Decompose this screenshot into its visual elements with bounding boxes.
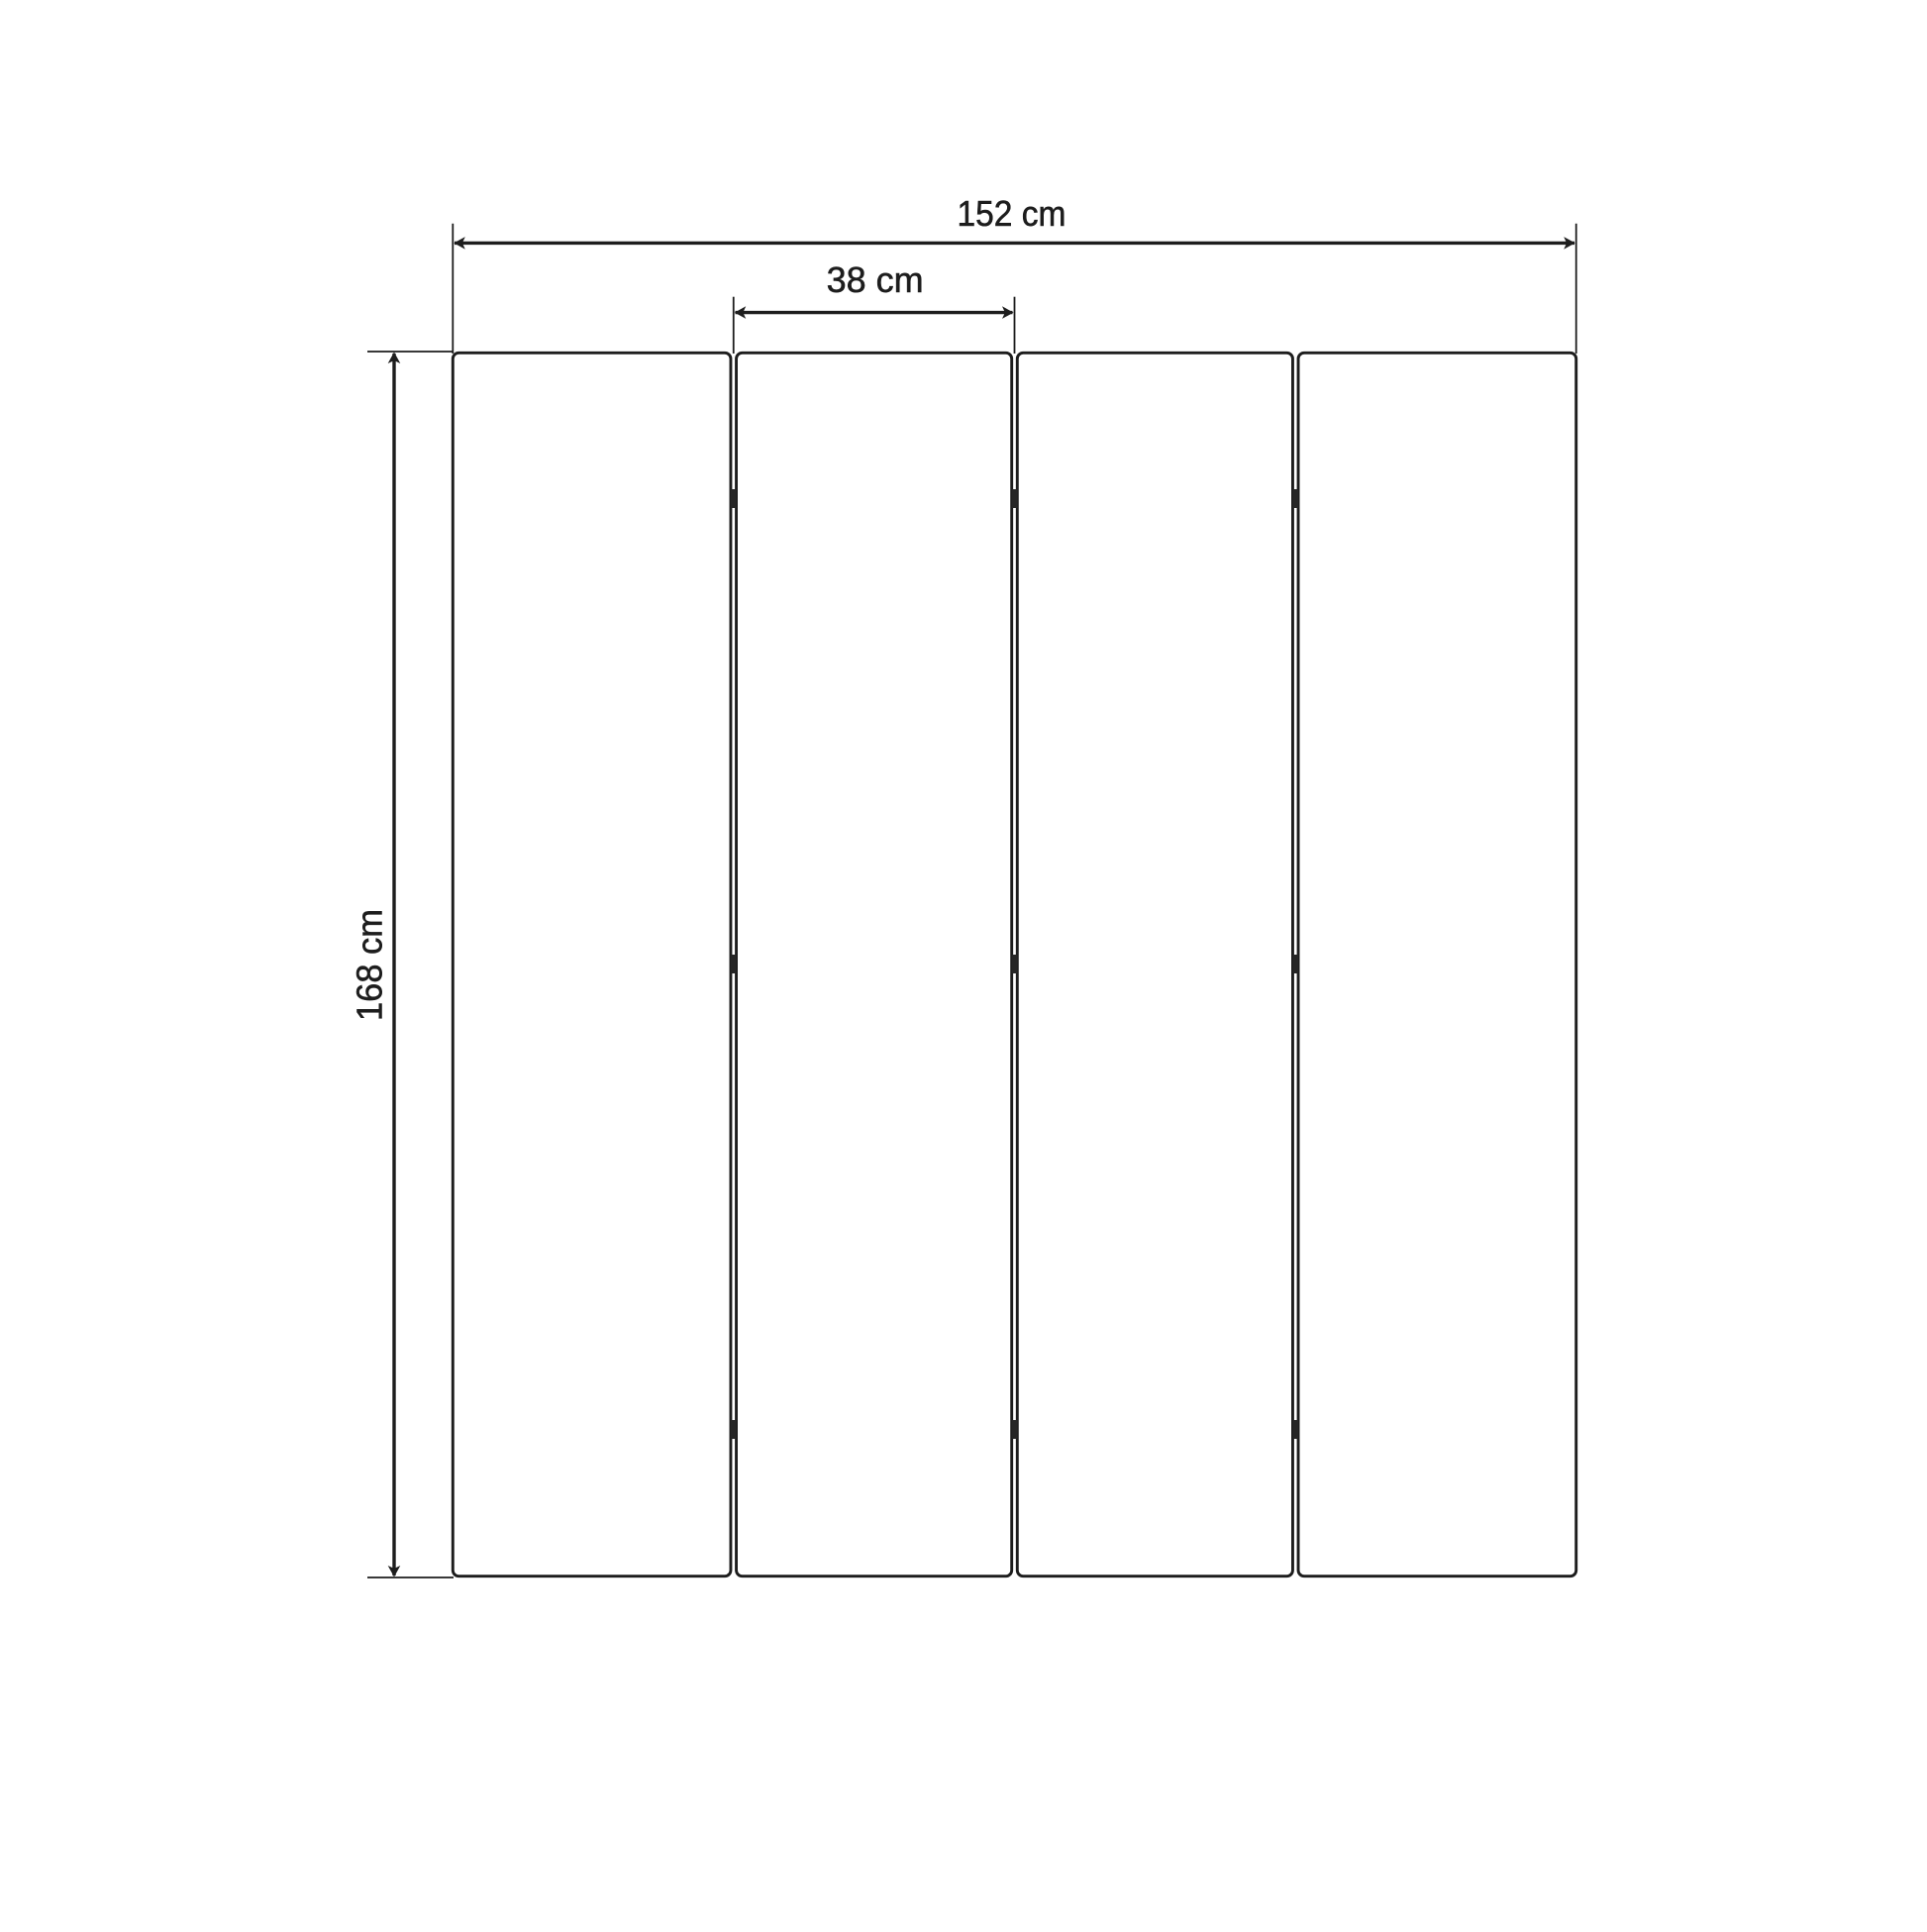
svg-text:152 cm: 152 cm (958, 193, 1066, 234)
svg-text:168 cm: 168 cm (350, 909, 390, 1021)
svg-text:38 cm: 38 cm (827, 259, 924, 300)
